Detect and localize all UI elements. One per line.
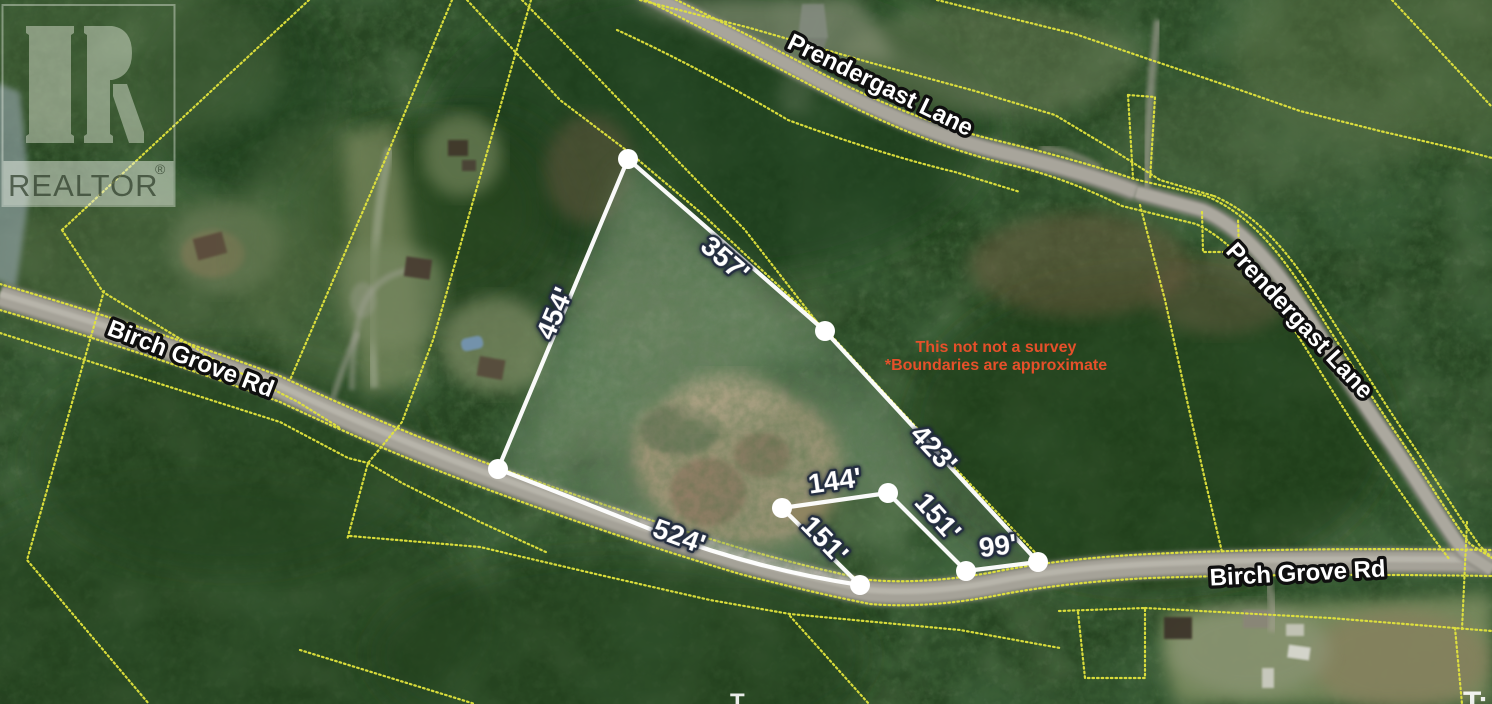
svg-text:This not not a survey: This not not a survey <box>916 339 1077 356</box>
svg-text:*Boundaries are approximate: *Boundaries are approximate <box>885 357 1107 374</box>
svg-text:T: T <box>730 689 745 704</box>
svg-text:REALTOR: REALTOR <box>8 168 159 203</box>
svg-text:®: ® <box>155 161 166 177</box>
svg-text:T:: T: <box>1463 686 1488 704</box>
svg-text:99': 99' <box>977 528 1018 563</box>
